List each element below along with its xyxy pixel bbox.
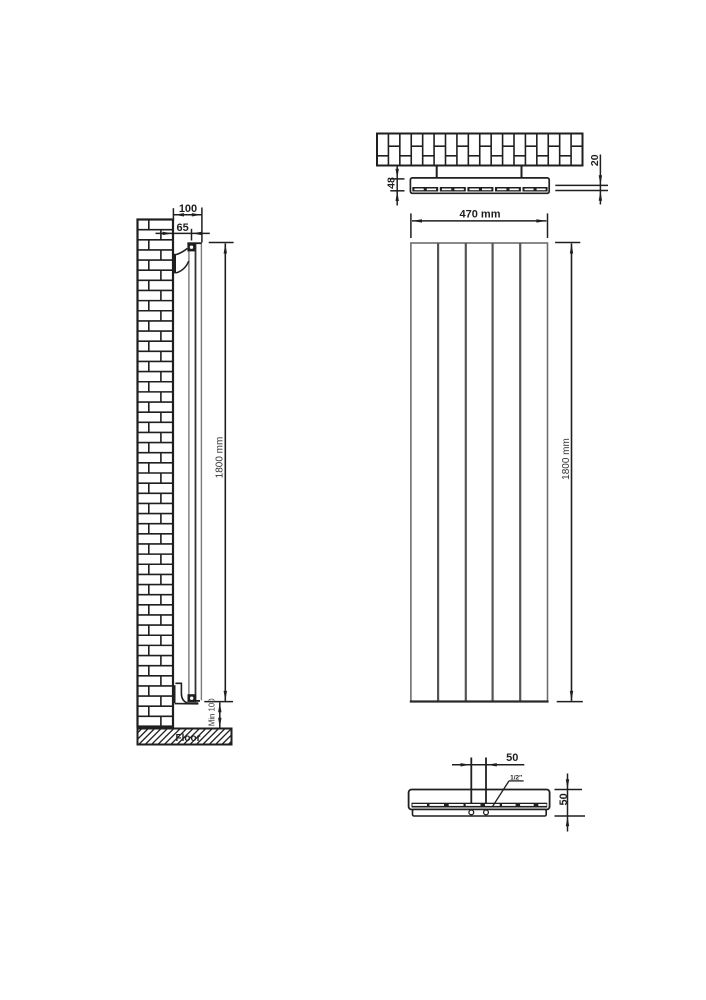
svg-text:100: 100: [179, 203, 197, 215]
svg-text:50: 50: [506, 752, 518, 764]
svg-text:Min 100: Min 100: [208, 698, 217, 726]
svg-text:20: 20: [589, 154, 601, 166]
svg-text:Floor: Floor: [176, 733, 201, 744]
svg-text:1800 mm: 1800 mm: [561, 438, 572, 480]
svg-text:48: 48: [386, 177, 398, 189]
svg-text:470 mm: 470 mm: [460, 208, 501, 220]
svg-text:1800 mm: 1800 mm: [214, 437, 225, 479]
svg-text:65: 65: [176, 222, 188, 234]
svg-text:50: 50: [558, 793, 570, 805]
